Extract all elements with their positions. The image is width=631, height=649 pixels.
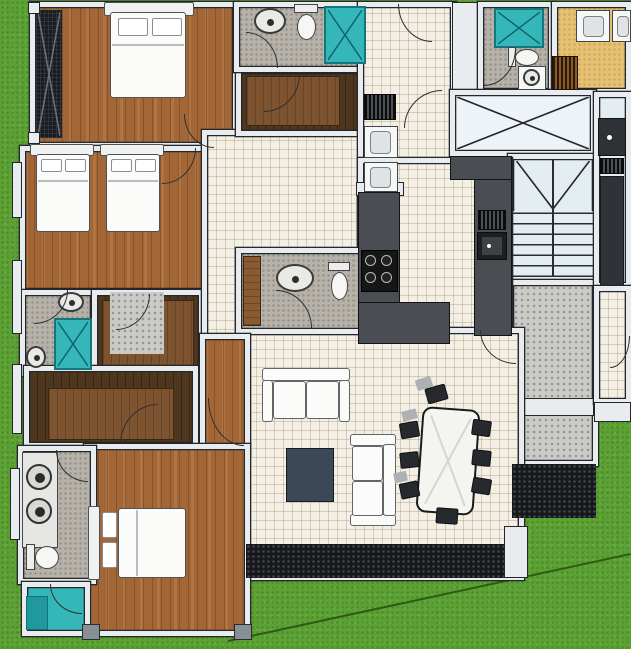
bed2b-fold bbox=[108, 180, 158, 182]
coffee-table bbox=[286, 448, 334, 502]
sofa1-cushion bbox=[306, 381, 339, 419]
wall-cap-left bbox=[82, 624, 100, 640]
bed3-headboard bbox=[88, 506, 100, 580]
window-sill bbox=[12, 364, 22, 434]
dining-chair bbox=[471, 476, 492, 495]
dining-chair bbox=[399, 451, 420, 469]
bath3-toilet-tank bbox=[294, 4, 318, 13]
bath3-shower bbox=[324, 6, 366, 64]
bath3-toilet-bowl bbox=[297, 14, 316, 40]
kitchen-counter-bottom bbox=[358, 302, 450, 344]
sofa2-cushion bbox=[352, 481, 383, 516]
kitchen-dish-rack bbox=[478, 210, 506, 230]
floor-plan-canvas bbox=[0, 0, 631, 649]
laundry-vent bbox=[552, 56, 578, 90]
kitchen-sink bbox=[477, 232, 507, 260]
shaft-cap bbox=[28, 132, 40, 144]
x-mark bbox=[328, 10, 362, 60]
duct-shaft bbox=[36, 10, 62, 138]
window-sill bbox=[12, 260, 22, 334]
powder-toilet-tank bbox=[328, 262, 350, 271]
sofa1-cushion bbox=[273, 381, 306, 419]
living-edge-hatch bbox=[246, 544, 522, 578]
appliance-door bbox=[370, 131, 391, 154]
x-mark bbox=[58, 322, 88, 366]
faucet-dot bbox=[69, 300, 75, 306]
table-x-pattern bbox=[420, 410, 477, 511]
shower-mat bbox=[26, 596, 48, 630]
bed3-mattress bbox=[118, 508, 186, 578]
stove-burner bbox=[381, 255, 392, 266]
bath2-sink bbox=[26, 498, 52, 524]
landing-edge-hatch bbox=[512, 464, 596, 518]
bed2a-pillow bbox=[41, 159, 62, 172]
bed3-pillow bbox=[102, 542, 117, 568]
bath2-sink bbox=[26, 464, 52, 490]
stove-burner bbox=[381, 272, 392, 283]
powder-room-cabinet bbox=[243, 256, 261, 326]
outdoor-sink bbox=[598, 118, 626, 156]
bath1-toilet bbox=[26, 346, 46, 368]
basin bbox=[35, 473, 45, 483]
side-strip-end-wall bbox=[594, 402, 631, 422]
appliance-door bbox=[583, 16, 604, 37]
bed1-pillow bbox=[152, 18, 182, 36]
basin bbox=[35, 507, 45, 517]
faucet-dot bbox=[530, 76, 535, 81]
corridor-vent bbox=[364, 94, 396, 120]
duct-column bbox=[600, 176, 624, 286]
dining-chair bbox=[399, 420, 420, 439]
shaft-cap bbox=[28, 2, 40, 14]
bath3-sink bbox=[254, 8, 286, 34]
kitchen-faucet-dot bbox=[487, 244, 491, 248]
sofa1-arm bbox=[339, 380, 350, 422]
bed2a-fold bbox=[38, 180, 88, 182]
wall-cap-right bbox=[234, 624, 252, 640]
corridor-appliance bbox=[364, 162, 398, 192]
laundry-appliance bbox=[576, 10, 610, 42]
room-elevator-shaft bbox=[450, 90, 596, 156]
sofa2-cushion bbox=[352, 446, 383, 481]
faucet-dot bbox=[292, 276, 299, 283]
bath4-toilet-bowl bbox=[515, 49, 539, 66]
landing-step-wall bbox=[514, 398, 594, 416]
dining-chair bbox=[435, 507, 458, 524]
bed1-fold bbox=[112, 44, 184, 46]
dining-chair bbox=[471, 449, 492, 467]
stair-center-stringer bbox=[552, 159, 554, 277]
stove-burner bbox=[365, 255, 376, 266]
outdoor-sink-faucet-dot bbox=[607, 135, 612, 140]
dining-chair bbox=[471, 419, 492, 437]
drain-dot bbox=[34, 355, 40, 361]
bath1-shower bbox=[54, 318, 92, 370]
x-mark bbox=[38, 12, 60, 136]
bed2a-pillow bbox=[65, 159, 86, 172]
bed2b-pillow bbox=[135, 159, 156, 172]
stove-burner bbox=[365, 272, 376, 283]
powder-toilet-bowl bbox=[331, 272, 348, 300]
corridor-appliance bbox=[364, 126, 398, 158]
room-staircase bbox=[508, 154, 598, 282]
porch-step bbox=[504, 526, 528, 578]
powder-sink bbox=[276, 264, 314, 292]
strip-grill bbox=[600, 158, 624, 174]
bath4-sink bbox=[523, 69, 540, 86]
bed3-fold bbox=[136, 510, 138, 576]
laundry-appliance bbox=[612, 10, 631, 42]
kitchen-sink-basin bbox=[482, 237, 502, 255]
appliance-door bbox=[617, 16, 629, 37]
window-sill bbox=[12, 162, 22, 218]
appliance-door bbox=[370, 167, 391, 188]
faucet-dot bbox=[267, 19, 274, 26]
bath4-shower bbox=[494, 8, 544, 48]
bath2-toilet-bowl bbox=[35, 546, 59, 569]
bed3-pillow bbox=[102, 512, 117, 538]
bed2b-pillow bbox=[111, 159, 132, 172]
bath2-toilet-tank bbox=[26, 544, 35, 570]
x-mark bbox=[498, 12, 540, 44]
sofa1-arm bbox=[262, 380, 273, 422]
sofa1-back bbox=[262, 368, 350, 381]
kitchen-counter-top bbox=[450, 156, 512, 180]
window-sill bbox=[10, 468, 20, 540]
x-mark bbox=[457, 97, 589, 149]
bed1-pillow bbox=[118, 18, 148, 36]
